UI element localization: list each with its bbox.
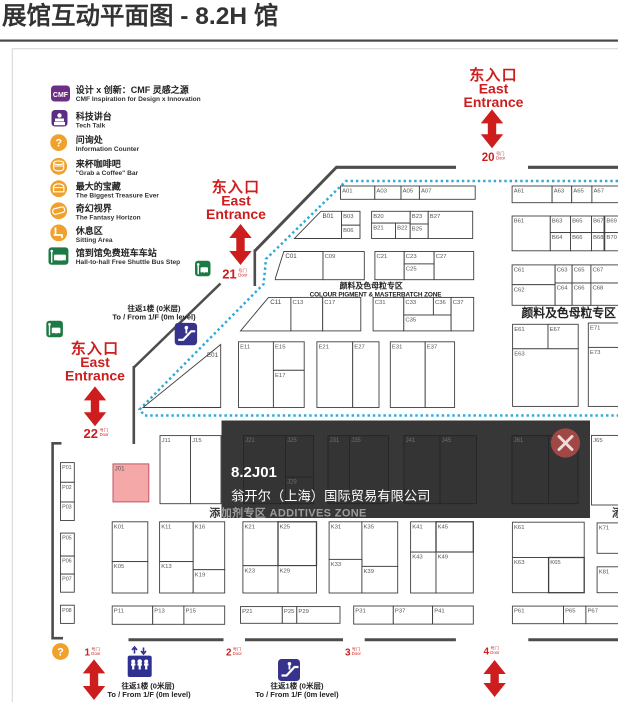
svg-text:C11: C11 — [270, 299, 281, 306]
svg-text:P21: P21 — [242, 609, 252, 615]
svg-text:3: 3 — [345, 648, 351, 659]
svg-text:最大的宝藏: 最大的宝藏 — [76, 181, 121, 192]
svg-text:P02: P02 — [62, 485, 72, 491]
svg-text:J35: J35 — [351, 438, 361, 444]
svg-text:A63: A63 — [554, 189, 565, 195]
svg-text:E37: E37 — [427, 344, 437, 350]
svg-text:CMF Inspiration for Design x I: CMF Inspiration for Design x Innovation — [76, 96, 201, 103]
svg-text:P41: P41 — [434, 609, 444, 615]
svg-text:Sitting Area: Sitting Area — [76, 237, 113, 244]
svg-text:J61: J61 — [514, 438, 524, 444]
svg-text:J29: J29 — [287, 480, 297, 486]
svg-text:K43: K43 — [412, 555, 423, 561]
svg-text:?: ? — [55, 138, 62, 150]
svg-text:添加剂专区 ADDITIVES ZONE: 添加剂专区 ADDITIVES ZONE — [612, 505, 618, 519]
svg-text:E67: E67 — [550, 327, 560, 333]
svg-text:Door: Door — [100, 432, 110, 437]
svg-text:翁开尔（上海）国际贸易有限公司: 翁开尔（上海）国际贸易有限公司 — [231, 489, 430, 504]
svg-text:?: ? — [57, 647, 64, 659]
svg-text:科技讲台: 科技讲台 — [76, 111, 112, 122]
svg-text:P15: P15 — [186, 609, 197, 615]
svg-text:K29: K29 — [280, 568, 290, 574]
svg-text:B27: B27 — [430, 214, 440, 220]
svg-text:K33: K33 — [331, 562, 342, 568]
svg-text:Hall-to-hall Free Shuttle Bus: Hall-to-hall Free Shuttle Bus Step — [76, 259, 180, 266]
svg-text:K41: K41 — [412, 524, 422, 530]
svg-text:C62: C62 — [514, 287, 525, 293]
svg-text:4: 4 — [484, 647, 490, 658]
svg-text:C67: C67 — [593, 268, 604, 274]
svg-text:往返1楼 (0米层): 往返1楼 (0米层) — [122, 681, 175, 691]
svg-text:往返1楼 (0米层): 往返1楼 (0米层) — [271, 681, 324, 691]
svg-text:B64: B64 — [552, 235, 563, 241]
svg-text:J41: J41 — [406, 438, 416, 444]
svg-text:B61: B61 — [514, 219, 524, 225]
svg-text:K23: K23 — [245, 568, 256, 574]
svg-text:J11: J11 — [162, 438, 171, 444]
svg-text:K39: K39 — [364, 569, 374, 575]
svg-text:B21: B21 — [373, 226, 383, 232]
svg-text:往返1楼 (0米层): 往返1楼 (0米层) — [128, 303, 181, 313]
svg-text:21: 21 — [222, 267, 236, 282]
svg-text:J65: J65 — [593, 438, 603, 444]
svg-text:K25: K25 — [280, 524, 291, 530]
svg-text:B70: B70 — [606, 235, 617, 241]
svg-text:Information Counter: Information Counter — [76, 146, 140, 153]
svg-text:B22: B22 — [397, 226, 407, 232]
svg-text:K11: K11 — [161, 524, 171, 530]
svg-text:展馆互动平面图 - 8.2H 馆: 展馆互动平面图 - 8.2H 馆 — [2, 1, 278, 30]
svg-text:A07: A07 — [421, 189, 431, 195]
svg-text:J31: J31 — [330, 438, 340, 444]
svg-text:P61: P61 — [514, 609, 524, 615]
svg-text:C33: C33 — [405, 300, 417, 306]
svg-text:A03: A03 — [376, 189, 387, 195]
svg-text:P37: P37 — [395, 609, 405, 615]
svg-text:问询处: 问询处 — [76, 134, 104, 145]
svg-text:J45: J45 — [442, 438, 452, 444]
svg-text:C27: C27 — [436, 254, 447, 260]
svg-text:奇幻视界: 奇幻视界 — [76, 203, 112, 214]
svg-text:P29: P29 — [298, 609, 308, 615]
svg-text:C31: C31 — [375, 300, 386, 306]
svg-text:C17: C17 — [324, 300, 335, 306]
svg-text:B65: B65 — [572, 219, 583, 225]
svg-text:J15: J15 — [192, 438, 202, 444]
svg-text:颜料及色母粒专区: 颜料及色母粒专区 — [340, 281, 403, 291]
svg-text:K45: K45 — [438, 524, 449, 530]
svg-text:C35: C35 — [405, 318, 417, 324]
svg-text:P07: P07 — [62, 577, 72, 583]
svg-text:P31: P31 — [355, 609, 365, 615]
svg-text:K16: K16 — [195, 524, 206, 530]
svg-text:C68: C68 — [593, 286, 605, 292]
svg-text:1: 1 — [85, 648, 91, 659]
svg-text:B20: B20 — [373, 214, 384, 220]
svg-text:A61: A61 — [514, 189, 524, 195]
svg-text:Entrance: Entrance — [206, 206, 266, 222]
svg-text:P67: P67 — [588, 609, 598, 615]
svg-text:E11: E11 — [240, 344, 250, 350]
svg-text:P01: P01 — [62, 465, 72, 471]
svg-text:C66: C66 — [574, 286, 586, 292]
svg-text:K13: K13 — [161, 564, 172, 570]
svg-text:Door: Door — [233, 651, 243, 656]
svg-text:E27: E27 — [354, 344, 364, 350]
svg-text:P11: P11 — [114, 609, 124, 615]
svg-text:B69: B69 — [606, 219, 616, 225]
svg-text:A05: A05 — [403, 189, 414, 195]
svg-text:Tech Talk: Tech Talk — [76, 123, 106, 130]
svg-text:To / From 1/F (0m level): To / From 1/F (0m level) — [107, 690, 191, 699]
svg-text:K81: K81 — [599, 569, 609, 575]
svg-text:K05: K05 — [114, 564, 125, 570]
svg-text:P03: P03 — [62, 505, 72, 511]
svg-text:E21: E21 — [319, 344, 329, 350]
svg-text:K19: K19 — [195, 572, 205, 578]
svg-text:22: 22 — [84, 426, 98, 441]
svg-text:来杯咖啡吧: 来杯咖啡吧 — [75, 158, 121, 169]
svg-text:K31: K31 — [331, 524, 341, 530]
svg-text:B66: B66 — [572, 235, 583, 241]
svg-text:B25: B25 — [412, 227, 423, 233]
svg-text:E31: E31 — [392, 344, 402, 350]
svg-text:J25: J25 — [287, 438, 297, 444]
svg-text:P06: P06 — [62, 559, 72, 565]
svg-text:8.2J01: 8.2J01 — [231, 464, 277, 481]
svg-text:C64: C64 — [557, 286, 569, 292]
svg-text:K01: K01 — [114, 524, 124, 530]
svg-text:To / From 1/F (0m level): To / From 1/F (0m level) — [255, 690, 339, 699]
svg-text:B67: B67 — [593, 219, 603, 225]
svg-text:颜料及色母粒专区: 颜料及色母粒专区 — [522, 306, 617, 320]
svg-text:Door: Door — [238, 272, 248, 277]
svg-text:C61: C61 — [514, 268, 525, 274]
svg-text:B63: B63 — [552, 219, 563, 225]
svg-text:J21: J21 — [245, 438, 255, 444]
svg-text:C37: C37 — [453, 300, 464, 306]
svg-text:E61: E61 — [514, 327, 524, 333]
svg-text:C09: C09 — [325, 254, 336, 260]
svg-text:C23: C23 — [406, 254, 418, 260]
svg-text:B68: B68 — [593, 235, 604, 241]
svg-text:C63: C63 — [557, 268, 569, 274]
svg-text:B06: B06 — [343, 228, 354, 234]
svg-text:The Biggest Treasure Ever: The Biggest Treasure Ever — [76, 193, 160, 200]
svg-text:B01: B01 — [323, 213, 335, 220]
svg-text:2: 2 — [226, 648, 232, 659]
svg-text:A65: A65 — [573, 189, 584, 195]
svg-text:K35: K35 — [364, 524, 375, 530]
svg-text:C13: C13 — [293, 300, 305, 306]
svg-text:B23: B23 — [412, 214, 423, 220]
svg-text:P25: P25 — [284, 609, 295, 615]
svg-text:P05: P05 — [62, 536, 72, 542]
svg-text:P08: P08 — [62, 608, 72, 614]
svg-text:E01: E01 — [207, 352, 219, 359]
svg-text:A01: A01 — [342, 189, 352, 195]
svg-text:E73: E73 — [590, 350, 601, 356]
svg-text:K71: K71 — [599, 526, 609, 532]
svg-text:E71: E71 — [590, 326, 600, 332]
svg-text:Door: Door — [490, 650, 500, 655]
svg-text:C65: C65 — [574, 268, 586, 274]
svg-text:P65: P65 — [565, 609, 576, 615]
svg-text:K65: K65 — [550, 560, 561, 566]
svg-text:K21: K21 — [245, 524, 255, 530]
svg-text:K49: K49 — [438, 555, 448, 561]
svg-text:CMF: CMF — [53, 92, 69, 99]
svg-text:E63: E63 — [514, 351, 525, 357]
svg-text:K63: K63 — [514, 560, 525, 566]
svg-text:C21: C21 — [377, 254, 388, 260]
svg-text:C25: C25 — [406, 267, 418, 273]
svg-text:P13: P13 — [154, 609, 165, 615]
svg-text:E15: E15 — [275, 344, 286, 350]
svg-text:20: 20 — [482, 152, 495, 164]
svg-text:J01: J01 — [115, 466, 126, 473]
svg-text:馆到馆免费班车车站: 馆到馆免费班车车站 — [76, 247, 157, 258]
svg-text:E17: E17 — [275, 373, 285, 379]
svg-text:Door: Door — [496, 155, 506, 160]
svg-text:"Grab a Coffee" Bar: "Grab a Coffee" Bar — [76, 170, 139, 177]
svg-text:Door: Door — [91, 651, 101, 656]
svg-text:休息区: 休息区 — [75, 225, 103, 236]
svg-text:A67: A67 — [594, 189, 604, 195]
svg-text:B03: B03 — [343, 214, 354, 220]
svg-text:K61: K61 — [514, 525, 524, 531]
svg-text:添加剂专区 ADDITIVES ZONE: 添加剂专区 ADDITIVES ZONE — [209, 505, 366, 519]
svg-text:Entrance: Entrance — [464, 94, 524, 110]
svg-text:Entrance: Entrance — [65, 368, 125, 384]
svg-text:设计 x 创新：CMF 灵感之源: 设计 x 创新：CMF 灵感之源 — [76, 84, 189, 95]
svg-text:To / From 1/F (0m level): To / From 1/F (0m level) — [112, 313, 196, 322]
svg-text:The Fantasy Horizon: The Fantasy Horizon — [76, 215, 141, 222]
svg-text:C01: C01 — [285, 253, 297, 260]
svg-text:Door: Door — [352, 651, 362, 656]
svg-text:C36: C36 — [435, 300, 447, 306]
